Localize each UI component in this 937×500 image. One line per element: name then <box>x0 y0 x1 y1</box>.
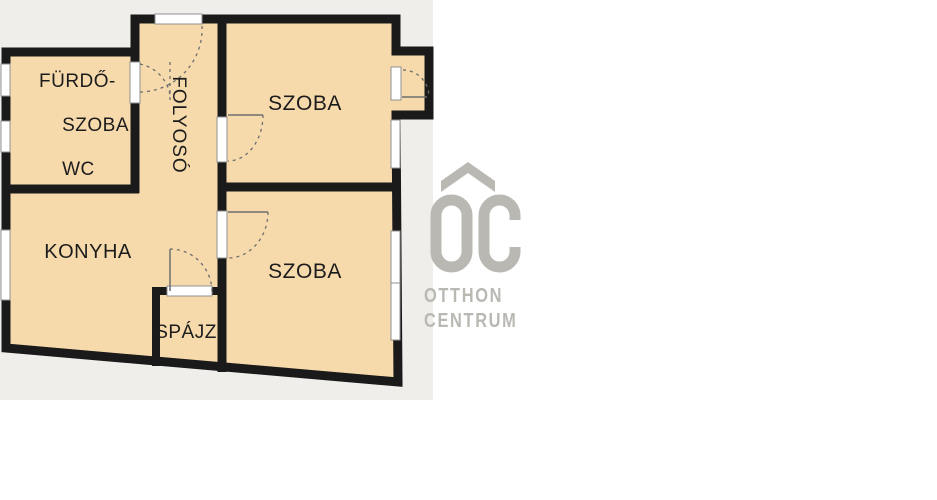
bathroom-door-opening <box>130 62 140 103</box>
room-label-bathroom: FÜRDŐ- SZOBA WC <box>39 71 129 181</box>
roof-chevron-icon <box>441 162 495 192</box>
watermark-line1: OTTHON <box>424 285 503 308</box>
window <box>1 230 10 300</box>
floor-plan-image: FÜRDŐ- SZOBA WC FOLYOSÓ SZOBA SZOBA KONY… <box>0 0 937 500</box>
oc-monogram <box>436 162 525 267</box>
bathroom-label-line1: FÜRDŐ- <box>39 71 116 92</box>
logo-letter-c-notch <box>505 220 525 247</box>
room-label-room-top: SZOBA <box>245 92 365 116</box>
entry-door-opening <box>155 14 202 24</box>
room-label-hallway: FOLYOSÓ <box>167 65 189 185</box>
room-label-pantry: SPÁJZ <box>136 322 236 344</box>
watermark-line2: CENTRUM <box>424 310 517 333</box>
room-label-kitchen: KONYHA <box>28 241 148 264</box>
window <box>1 64 10 96</box>
window <box>391 231 400 340</box>
logo-letter-o <box>436 200 467 267</box>
balcony-door-opening <box>391 67 401 100</box>
room-bottom-door-opening <box>217 211 227 258</box>
room-top-door-opening <box>217 117 227 162</box>
room-label-room-bottom: SZOBA <box>245 260 365 284</box>
window <box>1 121 10 152</box>
bathroom-label-line3: WC <box>62 159 95 180</box>
window <box>391 120 400 168</box>
bathroom-label-line2: SZOBA <box>62 115 129 136</box>
pantry-door-opening <box>167 286 212 296</box>
